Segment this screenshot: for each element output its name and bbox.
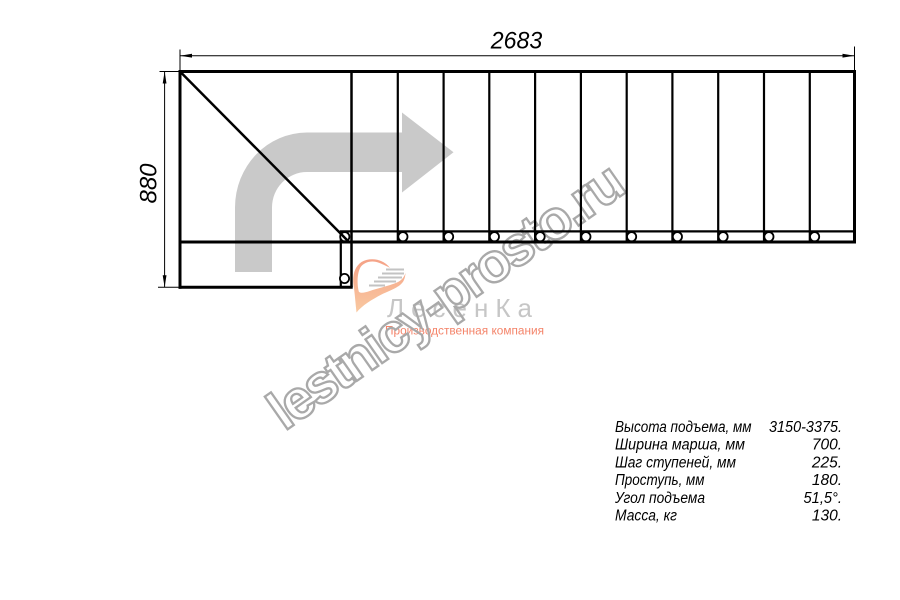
svg-text:Масса, кг: Масса, кг — [615, 508, 677, 525]
svg-text:2683: 2683 — [490, 28, 543, 55]
svg-text:51,5°.: 51,5°. — [804, 490, 843, 507]
svg-text:3150-3375.: 3150-3375. — [769, 419, 842, 436]
svg-text:880: 880 — [136, 163, 163, 204]
svg-text:180.: 180. — [812, 472, 842, 489]
svg-text:225.: 225. — [811, 454, 842, 471]
svg-text:Угол подъема: Угол подъема — [614, 490, 705, 507]
svg-text:700.: 700. — [812, 437, 842, 454]
svg-text:Проступь, мм: Проступь, мм — [615, 472, 705, 489]
svg-text:130.: 130. — [812, 508, 842, 525]
svg-text:Ширина марша, мм: Ширина марша, мм — [615, 437, 745, 454]
svg-text:Высота подъема, мм: Высота подъема, мм — [615, 419, 752, 436]
svg-text:Шаг ступеней, мм: Шаг ступеней, мм — [615, 454, 736, 471]
